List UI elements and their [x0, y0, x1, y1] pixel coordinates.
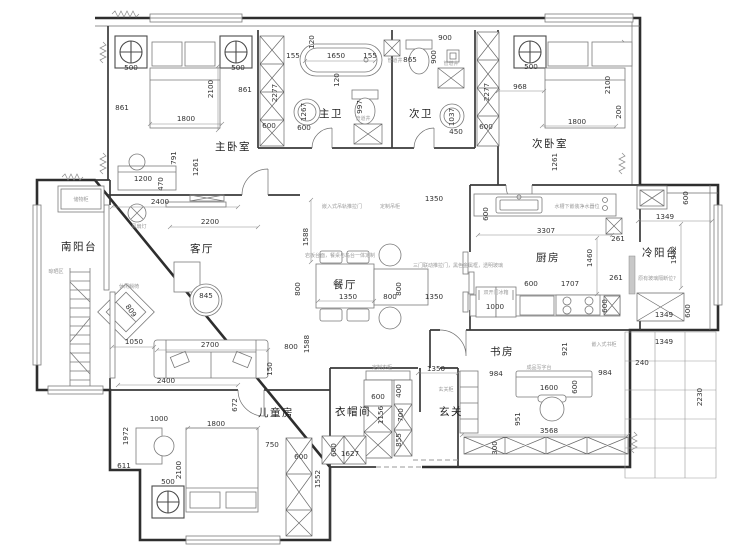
desk-chair — [538, 395, 566, 421]
dim-label: 1000 — [150, 414, 169, 423]
dim-label: 1267 — [299, 103, 308, 121]
dresser — [118, 154, 176, 190]
dim-label: 865 — [403, 55, 417, 64]
dim-label: 921 — [560, 342, 569, 356]
bookshelf-row — [464, 437, 628, 454]
dim-label: 1588 — [302, 334, 311, 353]
round-coffee-table — [190, 284, 222, 316]
dim-label: 600 — [681, 191, 690, 205]
dim-label: 984 — [598, 368, 612, 377]
pipe-shaft-mbath — [354, 124, 382, 144]
dim-label: 600 — [481, 207, 490, 221]
dim-label: 600 — [570, 380, 579, 394]
dim-label: 984 — [489, 369, 503, 378]
tub-side-box — [384, 40, 400, 56]
dim-label: 1600 — [540, 383, 559, 392]
dim-label: 2400 — [157, 376, 176, 385]
dim-label: 261 — [611, 234, 625, 243]
note-water-filter: 水槽下嵌装净水器位 — [554, 203, 599, 210]
dim-label: 1349 — [655, 337, 674, 346]
kids-bed — [186, 428, 258, 512]
note-hall-cabinet: 定制吊柜 — [380, 203, 400, 210]
dim-label: 600 — [262, 121, 276, 130]
door-mbath — [312, 128, 332, 148]
door-sbath — [414, 128, 434, 148]
dim-label: 2230 — [695, 387, 704, 406]
note-lounge: 休闲躺椅 — [119, 283, 139, 290]
tv-console — [166, 202, 226, 207]
nightstand-lamp-icon — [152, 486, 184, 518]
window-master-top — [150, 14, 242, 22]
dim-label: 3307 — [537, 226, 555, 235]
room-label-sbalcony: 南阳台 — [61, 240, 97, 253]
dim-label: 470 — [156, 177, 165, 191]
dim-label: 2277 — [270, 84, 279, 102]
dim-label: 2200 — [201, 217, 220, 226]
dim-label: 1932 — [669, 246, 678, 264]
dim-label: 900 — [429, 50, 438, 64]
window-kids-bottom — [186, 536, 280, 544]
radiator-icon — [100, 153, 106, 174]
base-cabinet — [520, 296, 554, 315]
floor-plan-page: 主卧室 主卫 次卫 次卧室 南阳台 客厅 餐厅 厨房 冷阳台 书房 儿童房 衣帽… — [0, 0, 740, 550]
dim-label: 1707 — [561, 279, 579, 288]
dim-label: 1050 — [125, 337, 144, 346]
cabinet-hatch — [606, 218, 622, 234]
note-sliding-door: 三门联动推拉门，黑色金属框，透明玻璃 — [413, 262, 503, 269]
door-master — [242, 169, 268, 195]
drying-rack — [70, 268, 90, 386]
room-label-dining: 餐厅 — [333, 278, 357, 291]
balcony-sliding-door — [104, 205, 115, 378]
note-drying: 晾晒区 — [48, 268, 63, 275]
dim-label: 791 — [169, 151, 178, 165]
note-pipe-shaft: 管道井 — [443, 60, 458, 67]
laundry-sink-unit — [637, 186, 667, 209]
window-balcony-bottom — [48, 386, 103, 394]
dim-label: 1800 — [207, 419, 226, 428]
radiator-icon — [100, 42, 106, 63]
note-storage: 储物柜 — [73, 196, 88, 203]
room-label-living: 客厅 — [190, 242, 214, 255]
dim-label: 2100 — [174, 460, 183, 479]
dim-label: 968 — [513, 82, 527, 91]
dim-label: 500 — [124, 63, 138, 72]
dim-label: 611 — [117, 461, 131, 470]
furniture-south-balcony — [58, 186, 104, 386]
note-shelf: 嵌入式书柜 — [591, 341, 616, 348]
dim-label: 600 — [371, 392, 385, 401]
dim-label: 150 — [265, 362, 274, 376]
dim-label: 600 — [479, 122, 493, 131]
dim-label: 855 — [394, 433, 403, 447]
dining-chair — [347, 309, 369, 321]
ceiling-fan-icon — [128, 204, 146, 222]
dining-chair — [320, 309, 342, 321]
dim-label: 845 — [199, 291, 213, 300]
dim-label: 300 — [490, 441, 499, 455]
dim-label: 861 — [238, 85, 252, 94]
dim-label: 500 — [231, 63, 245, 72]
radiator-icon — [631, 432, 637, 453]
room-label-mbath: 主卫 — [319, 108, 343, 120]
room-label-second: 次卧室 — [532, 137, 568, 150]
note-desk: 成品写字台 — [526, 364, 551, 371]
note-hall-door: 嵌入式吊轨推拉门 — [322, 203, 362, 210]
headboard-panel — [152, 42, 182, 66]
room-label-foyer: 玄关 — [439, 405, 463, 418]
dim-label: 200 — [614, 105, 623, 119]
note-cloak: 定制衣柜 — [372, 364, 392, 371]
dim-label: 2700 — [201, 340, 220, 349]
dim-label: 120 — [307, 35, 316, 49]
dim-label: 500 — [161, 477, 175, 486]
radiator-icon — [112, 11, 139, 17]
gas-stove — [556, 295, 600, 315]
room-label-sbath: 次卫 — [409, 107, 433, 120]
room-label-cloak: 衣帽间 — [335, 405, 371, 418]
window-second-top — [545, 14, 633, 22]
dim-label: 800 — [293, 282, 302, 296]
dim-label: 120 — [332, 73, 341, 87]
room-label-study: 书房 — [490, 345, 514, 358]
glass-partition — [629, 256, 635, 294]
dim-label: 1037 — [447, 108, 456, 126]
dim-label: 1349 — [656, 212, 675, 221]
dim-label: 500 — [524, 62, 538, 71]
note-pipe-shaft: 管道井 — [387, 57, 402, 64]
radiator-icon — [619, 153, 625, 174]
stool — [379, 307, 401, 329]
dim-label: 600 — [329, 443, 338, 457]
dim-label: 1350 — [427, 364, 446, 373]
dim-label: 400 — [394, 384, 403, 398]
headboard-panel — [185, 42, 215, 66]
dim-label: 1650 — [327, 51, 346, 60]
window-balcony-left — [33, 205, 41, 365]
dim-label: 1627 — [341, 449, 359, 458]
dim-label: 1972 — [121, 427, 130, 445]
kitchen-sink — [496, 195, 542, 213]
note-glass: 原有玻璃隔断位? — [638, 275, 676, 282]
foyer-cabinet — [460, 371, 478, 433]
dim-label: 600 — [600, 299, 609, 313]
room-label-kitchen: 厨房 — [536, 251, 560, 264]
cloak-shelf — [366, 371, 410, 380]
dim-label: 1349 — [655, 310, 674, 319]
dim-label: 800 — [394, 282, 403, 296]
dim-label: 700 — [396, 408, 405, 422]
note-fan: 风扇灯 — [131, 223, 146, 230]
dim-label: 2400 — [151, 197, 170, 206]
dim-label: 1350 — [425, 292, 444, 301]
note-dining-table: 岩板台面，餐桌与岛台一体定制 — [305, 252, 375, 259]
headboard-panel — [548, 42, 588, 66]
headboard-panel — [592, 42, 632, 66]
dim-label: 155 — [286, 51, 300, 60]
dim-label: 1460 — [585, 248, 594, 267]
dim-label: 2277 — [482, 83, 491, 101]
dim-label: 261 — [609, 273, 623, 282]
dim-label: 900 — [438, 33, 452, 42]
dim-label: 3568 — [540, 426, 559, 435]
floor-plan-canvas: 主卧室 主卫 次卫 次卧室 南阳台 客厅 餐厅 厨房 冷阳台 书房 儿童房 衣帽… — [0, 0, 740, 550]
window-cold-right — [714, 205, 722, 305]
dim-label: 155 — [363, 51, 377, 60]
dim-label: 1552 — [313, 470, 322, 488]
dim-label: 1156 — [376, 405, 385, 424]
dim-label: 600 — [524, 279, 538, 288]
note-pipe-shaft: 管道井 — [355, 115, 370, 122]
furniture-master-bedroom — [115, 36, 252, 190]
dim-label: 1588 — [301, 227, 310, 246]
kids-desk — [136, 428, 174, 464]
room-label-kids: 儿童房 — [258, 406, 294, 419]
note-shoe: 玄关柜 — [438, 386, 453, 393]
dim-label: 1800 — [568, 117, 587, 126]
stool — [379, 244, 401, 266]
dim-label: 800 — [284, 342, 298, 351]
dim-label: 1200 — [134, 174, 153, 183]
pipe-shaft-sbath — [438, 68, 464, 88]
dim-label: 600 — [683, 304, 692, 318]
dim-label: 1261 — [550, 153, 559, 171]
dim-label: 450 — [449, 127, 463, 136]
dim-label: 2100 — [206, 79, 215, 98]
dim-label: 1261 — [191, 158, 200, 176]
dim-label: 2100 — [603, 75, 612, 94]
door-study — [440, 330, 466, 356]
dim-label: 750 — [265, 440, 279, 449]
dim-label: 1800 — [177, 114, 196, 123]
dim-label: 240 — [635, 358, 649, 367]
dim-label: 1350 — [339, 292, 358, 301]
dim-label: 600 — [297, 123, 311, 132]
dim-label: 1000 — [486, 302, 505, 311]
lounge-chair — [98, 284, 155, 341]
note-fridge: 双开门冰箱 — [483, 289, 508, 296]
dim-label: 600 — [294, 452, 308, 461]
hatched-cabinets — [260, 32, 499, 146]
dim-label: 951 — [513, 412, 522, 426]
dim-label: 997 — [355, 100, 364, 114]
tv-icon — [190, 195, 224, 201]
dim-label: 672 — [230, 398, 239, 412]
dim-label: 861 — [115, 103, 129, 112]
dim-label: 1350 — [425, 194, 444, 203]
room-label-master: 主卧室 — [215, 140, 251, 153]
